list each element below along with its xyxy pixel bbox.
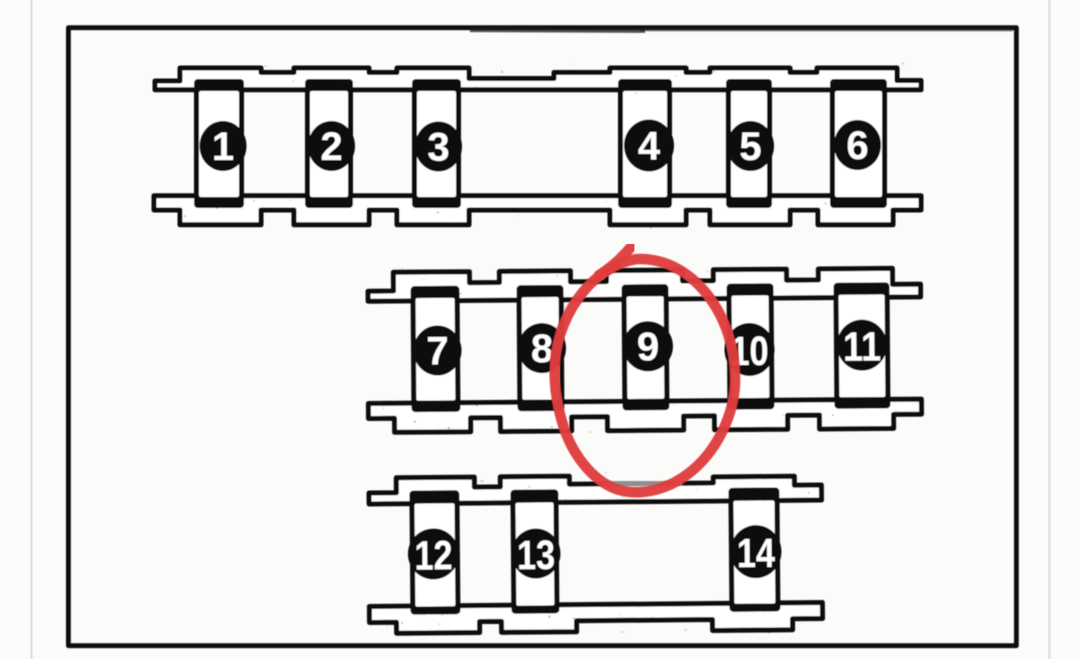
svg-text:5: 5 <box>739 125 761 169</box>
svg-text:13: 13 <box>517 532 555 578</box>
svg-text:7: 7 <box>426 329 449 373</box>
svg-text:14: 14 <box>737 530 776 576</box>
svg-text:6: 6 <box>846 124 868 168</box>
svg-text:2: 2 <box>320 125 342 169</box>
svg-text:9: 9 <box>637 325 660 369</box>
svg-text:4: 4 <box>638 125 661 169</box>
svg-text:11: 11 <box>843 323 881 369</box>
svg-text:12: 12 <box>414 532 452 578</box>
svg-text:1: 1 <box>212 125 234 169</box>
svg-text:3: 3 <box>427 126 449 170</box>
